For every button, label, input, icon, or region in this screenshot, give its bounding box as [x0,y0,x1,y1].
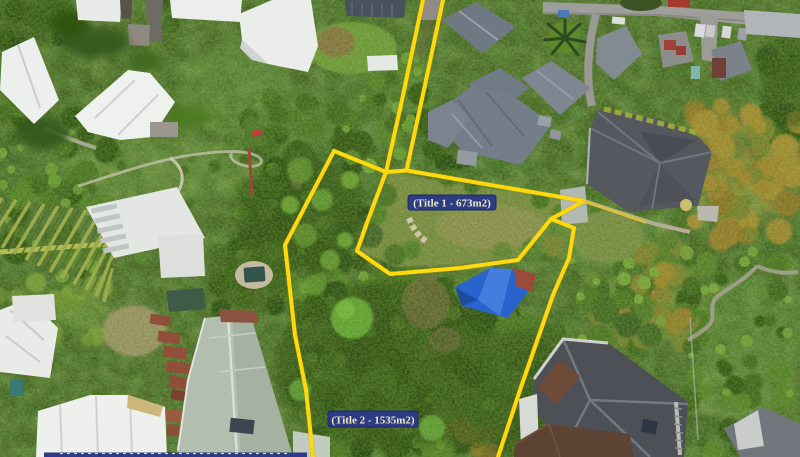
svg-text:(Title 2 - 1535m2): (Title 2 - 1535m2) [331,415,415,427]
svg-text:(Title 1 - 673m2): (Title 1 - 673m2) [413,198,491,210]
